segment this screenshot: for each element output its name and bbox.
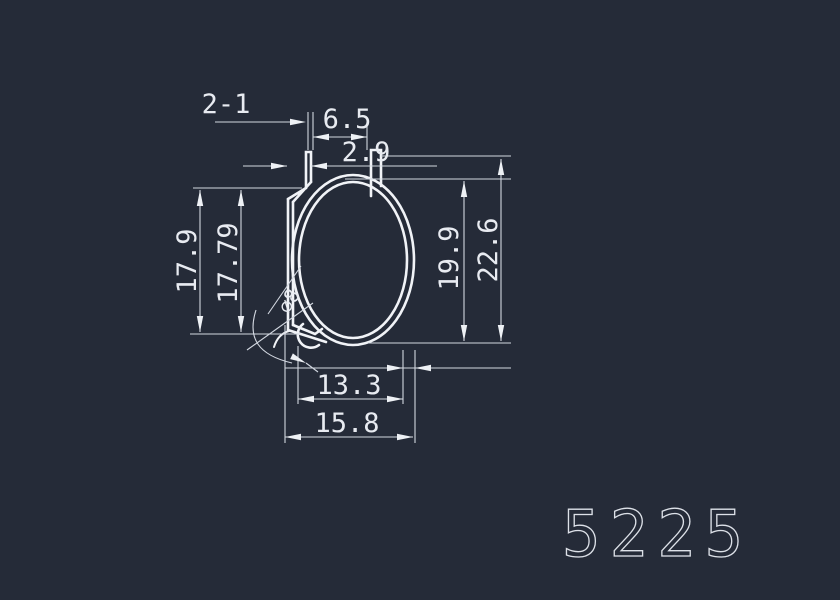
profile-outer-ellipse	[292, 175, 414, 345]
cad-viewport: 2-1 6.5 2.9 17.9 17.79 19.9 22.6 13.3 15…	[0, 0, 840, 600]
dim-left-height-outer: 17.9	[172, 228, 203, 293]
profile-inner-ellipse	[299, 182, 407, 338]
dim-prong-width: 2.9	[342, 137, 391, 168]
cad-drawing-canvas: 2-1 6.5 2.9 17.9 17.79 19.9 22.6 13.3 15…	[0, 0, 840, 600]
profile-outline	[274, 150, 414, 348]
dimension-texts: 2-1 6.5 2.9 17.9 17.79 19.9 22.6 13.3 15…	[172, 89, 504, 439]
callout-label: 2-1	[202, 89, 251, 120]
dim-bottom-width-inner: 13.3	[316, 370, 381, 401]
dim-bottom-width-outer: 15.8	[314, 408, 379, 439]
part-number: 5225	[562, 498, 752, 572]
profile-wall-foot-arc	[274, 331, 289, 347]
dim-right-height-outer: 22.6	[473, 217, 504, 282]
dim-top-opening: 6.5	[323, 104, 372, 135]
dim-left-height-inner: 17.79	[213, 222, 244, 303]
dim-right-height-inner: 19.9	[434, 225, 465, 290]
profile-left-funnel	[288, 182, 311, 202]
